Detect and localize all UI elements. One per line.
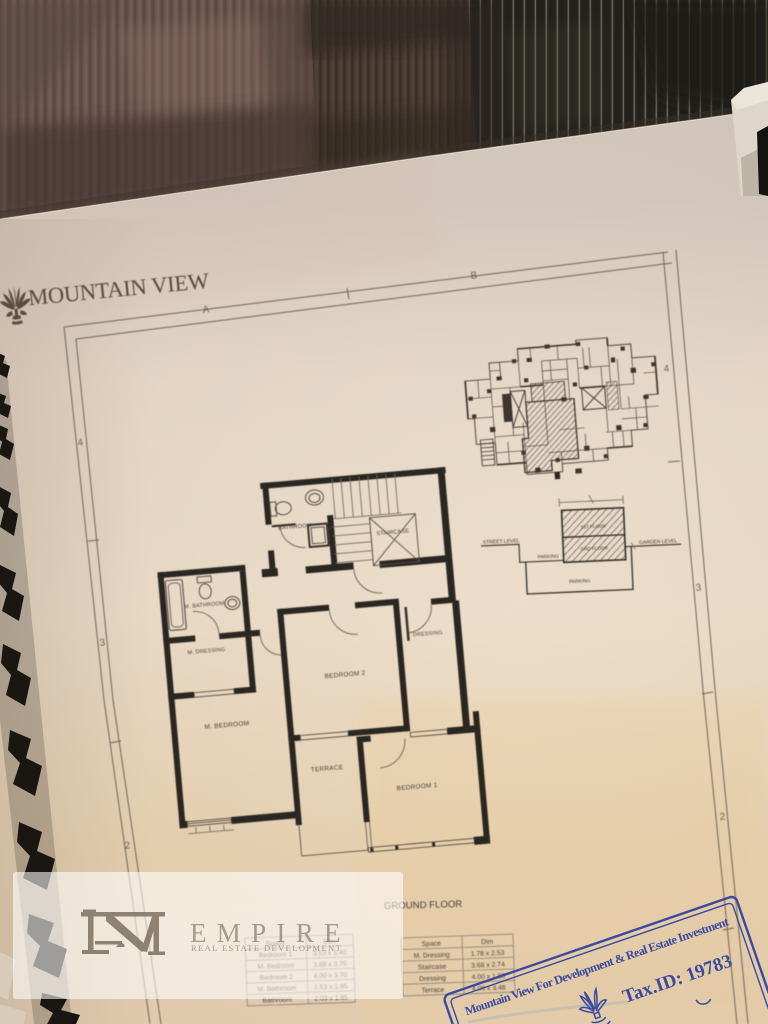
svg-text:PARKING: PARKING bbox=[537, 554, 559, 561]
svg-text:PARKING: PARKING bbox=[569, 578, 591, 585]
svg-text:Dressing: Dressing bbox=[419, 975, 446, 983]
svg-text:Space: Space bbox=[421, 940, 441, 948]
svg-text:REAL ESTATE DEVELOPMENT: REAL ESTATE DEVELOPMENT bbox=[191, 943, 343, 953]
svg-text:Staircase: Staircase bbox=[418, 963, 447, 971]
svg-text:M. Dressing: M. Dressing bbox=[413, 952, 450, 960]
svg-text:3.68 x 2.74: 3.68 x 2.74 bbox=[471, 961, 505, 969]
svg-text:1.78 x 2.53: 1.78 x 2.53 bbox=[471, 950, 505, 958]
svg-text:Terrace: Terrace bbox=[421, 987, 444, 995]
svg-text:Dim: Dim bbox=[481, 939, 494, 946]
